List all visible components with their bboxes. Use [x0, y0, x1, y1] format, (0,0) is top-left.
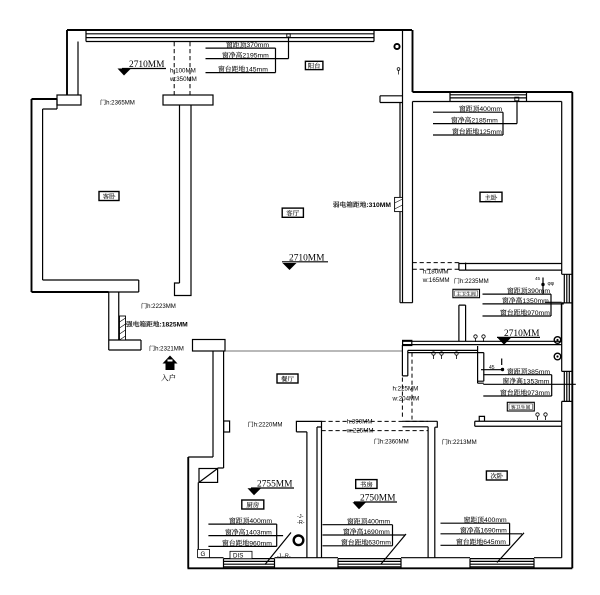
svg-text:-R-: -R- — [297, 520, 305, 526]
svg-text:h:2213MM: h:2213MM — [448, 439, 477, 446]
svg-text:145mm: 145mm — [245, 66, 268, 73]
svg-text:w:204MM: w:204MM — [392, 396, 420, 403]
svg-text:400mm: 400mm — [249, 518, 272, 525]
svg-text:630mm: 630mm — [368, 540, 391, 547]
svg-text:w:350MM: w:350MM — [169, 76, 197, 83]
svg-text:370mm: 370mm — [246, 42, 269, 49]
svg-text:970mm: 970mm — [527, 310, 550, 317]
svg-text:400mm: 400mm — [484, 517, 507, 524]
svg-text:h:180MM: h:180MM — [423, 269, 449, 276]
svg-text:φφ: φφ — [548, 281, 555, 287]
svg-text:h:2223MM: h:2223MM — [147, 303, 176, 310]
svg-text:1403mm: 1403mm — [245, 530, 272, 537]
svg-text:h:225MM: h:225MM — [393, 386, 419, 393]
svg-text:G: G — [201, 551, 206, 558]
svg-text::310MM: :310MM — [366, 202, 391, 209]
svg-text::1825MM: :1825MM — [160, 322, 189, 329]
svg-text:w:165MM: w:165MM — [422, 277, 450, 284]
svg-text:45: 45 — [535, 276, 541, 281]
svg-text:960mm: 960mm — [249, 540, 272, 547]
svg-text:1690mm: 1690mm — [363, 529, 390, 536]
svg-text:h:2235MM: h:2235MM — [460, 278, 489, 285]
svg-text:h:2360MM: h:2360MM — [380, 439, 409, 446]
svg-text:w:225MM: w:225MM — [346, 428, 374, 435]
svg-text:-J--R-: -J--R- — [277, 553, 291, 559]
svg-text:1353mm: 1353mm — [523, 378, 550, 385]
svg-text:645mm: 645mm — [483, 539, 506, 546]
svg-text:1690mm: 1690mm — [480, 528, 507, 535]
svg-text:390mm: 390mm — [527, 288, 550, 295]
svg-text:1350mm: 1350mm — [522, 298, 549, 305]
svg-text:DIS: DIS — [233, 552, 243, 559]
svg-text:125mm: 125mm — [479, 129, 502, 136]
svg-text:h:2321MM: h:2321MM — [155, 346, 184, 353]
svg-text:973mm: 973mm — [527, 390, 550, 397]
svg-text:400mm: 400mm — [367, 519, 390, 526]
svg-text:385mm: 385mm — [527, 369, 550, 376]
svg-text:h:2365MM: h:2365MM — [106, 100, 135, 107]
svg-text:h:100MM: h:100MM — [170, 68, 196, 75]
svg-text:400mm: 400mm — [479, 106, 502, 113]
svg-text:h:390MM: h:390MM — [347, 419, 373, 426]
svg-text:h:2220MM: h:2220MM — [254, 422, 283, 429]
svg-text:45: 45 — [489, 365, 495, 371]
svg-text:2185mm: 2185mm — [471, 117, 498, 124]
svg-text:2195mm: 2195mm — [242, 53, 269, 60]
